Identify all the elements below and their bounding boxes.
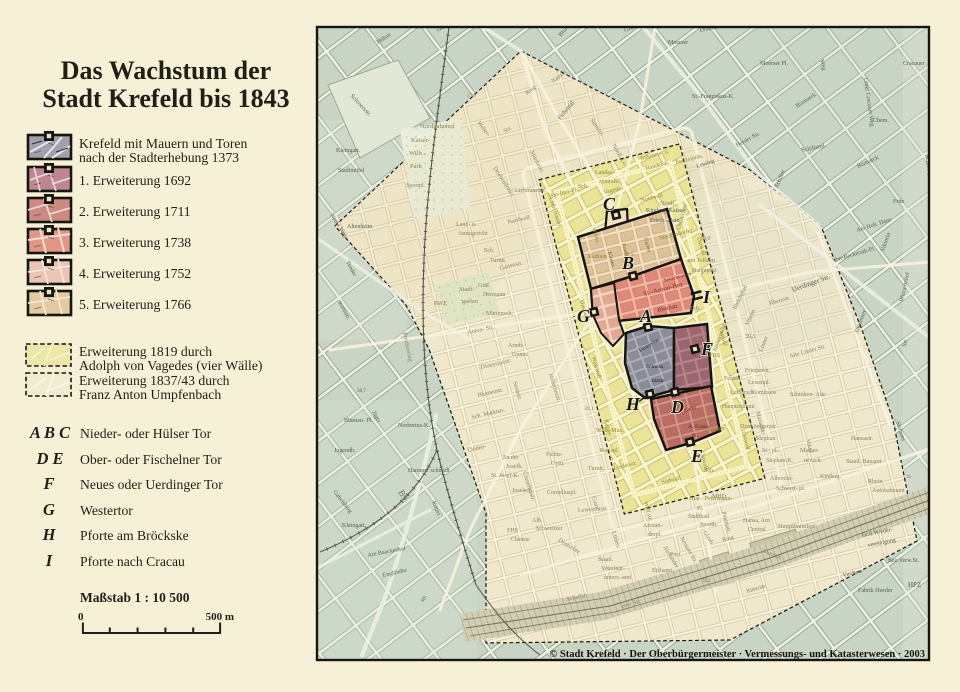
svg-text:A.-Frank-: A.-Frank- (688, 424, 710, 430)
svg-text:D E: D E (35, 449, 63, 468)
svg-text:Land- u.: Land- u. (456, 222, 477, 228)
svg-text:Comenius: Comenius (752, 390, 777, 396)
svg-text:5. Erweiterung 1766: 5. Erweiterung 1766 (79, 297, 191, 312)
svg-text:Karlspl.: Karlspl. (600, 448, 620, 454)
svg-text:Staatl.: Staatl. (598, 557, 614, 563)
svg-text:Stephan-K.: Stephan-K. (766, 458, 794, 464)
svg-text:Corneliuspl.: Corneliuspl. (547, 490, 577, 496)
svg-text:Nordl.: Nordl. (660, 201, 676, 207)
svg-text:Fichte-: Fichte- (546, 452, 563, 458)
svg-text:Erweiterung 1819 durch: Erweiterung 1819 durch (79, 344, 212, 359)
svg-text:Friedensk.: Friedensk. (745, 368, 771, 374)
svg-text:Kinderg.: Kinderg. (820, 474, 842, 480)
svg-text:Pl.: Pl. (697, 506, 704, 512)
svg-text:nach der Stadterhebung 1373: nach der Stadterhebung 1373 (79, 150, 239, 165)
svg-text:Stadtbad: Stadtbad (688, 514, 709, 520)
svg-text:Schwert- pl.: Schwert- pl. (776, 486, 806, 492)
svg-text:markt: markt (652, 378, 665, 384)
svg-text:Albrecht-: Albrecht- (770, 476, 793, 482)
svg-text:B: B (621, 253, 634, 273)
svg-text:Alb.: Alb. (532, 518, 543, 524)
svg-text:3. Erweiterung 1738: 3. Erweiterung 1738 (79, 235, 191, 250)
svg-text:Pforte am Bröckske: Pforte am Bröckske (80, 528, 189, 543)
svg-text:Veterinär-: Veterinär- (601, 566, 625, 572)
svg-text:37,8: 37,8 (467, 94, 476, 99)
svg-text:© Stadt Krefeld · Der Oberbürg: © Stadt Krefeld · Der Oberbürgermeister … (549, 649, 925, 660)
svg-text:Liebfrauenk.: Liebfrauenk. (515, 187, 546, 194)
svg-text:Rathaus: Rathaus (588, 254, 608, 260)
svg-text:Staatl. Bauamt: Staatl. Bauamt (846, 459, 882, 465)
svg-text:Jugendh.: Jugendh. (334, 448, 356, 454)
svg-text:2. Erweiterung 1711: 2. Erweiterung 1711 (79, 204, 191, 219)
svg-text:Sch.: Sch. (578, 184, 589, 190)
svg-text:38,7: 38,7 (357, 389, 366, 394)
svg-text:Luthersch.: Luthersch. (730, 390, 756, 396)
svg-text:Franz Anton Umpfenbach: Franz Anton Umpfenbach (79, 387, 221, 402)
svg-text:Hansa, Am: Hansa, Am (743, 518, 770, 524)
svg-text:Nordbahnhof: Nordbahnhof (420, 123, 455, 130)
svg-text:HPZ: HPZ (908, 581, 921, 589)
svg-text:Hauptbahnhof: Hauptbahnhof (778, 523, 816, 530)
svg-text:Stadtmittel: Stadtmittel (338, 168, 365, 174)
svg-text:St.-Franziskus-K.: St.-Franziskus-K. (692, 94, 735, 100)
svg-text:Gymn.: Gymn. (512, 352, 529, 358)
svg-text:Nieder- oder Hülser Tor: Nieder- oder Hülser Tor (80, 426, 212, 441)
svg-text:I: I (702, 287, 711, 307)
svg-text:Altenheim: Altenheim (347, 224, 373, 230)
svg-text:Krefeld mit Mauern und Toren: Krefeld mit Mauern und Toren (79, 136, 247, 151)
svg-text:39,0: 39,0 (690, 336, 700, 342)
svg-text:am Telkom: am Telkom (688, 258, 715, 264)
svg-text:Sporth.: Sporth. (700, 522, 718, 528)
svg-text:nensch.: nensch. (804, 458, 823, 464)
svg-text:G: G (43, 500, 55, 519)
svg-text:Sch.: Sch. (484, 248, 495, 254)
svg-text:Leisenpl.: Leisenpl. (748, 380, 771, 386)
svg-text:A: A (639, 306, 652, 326)
svg-text:garten: garten (462, 298, 479, 305)
svg-text:Kleingart.: Kleingart. (342, 523, 367, 529)
svg-text:500 m: 500 m (206, 611, 234, 623)
svg-text:F: F (42, 474, 54, 493)
svg-text:Joselsch.: Joselsch. (512, 488, 534, 494)
svg-text:0: 0 (78, 611, 84, 623)
svg-text:D: D (670, 397, 684, 417)
svg-text:Hammer schmidt: Hammer schmidt (408, 468, 450, 474)
svg-text:Maßstab 1 : 10 500: Maßstab 1 : 10 500 (80, 590, 190, 605)
svg-text:Tch.: Tch. (690, 306, 701, 312)
svg-text:Hansastr.: Hansastr. (851, 436, 874, 442)
svg-text:Schweitzer: Schweitzer (536, 526, 563, 532)
svg-text:An der: An der (502, 455, 519, 461)
svg-text:Sportpl.: Sportpl. (406, 183, 426, 189)
svg-text:F: F (700, 339, 713, 359)
svg-text:Das Wachstum der: Das Wachstum der (61, 56, 271, 85)
svg-text:Arndt-: Arndt- (508, 343, 524, 349)
svg-text:Fabrik Heeder: Fabrik Heeder (858, 588, 893, 594)
svg-text:36: 36 (906, 475, 912, 480)
svg-text:Landes-: Landes- (595, 170, 614, 176)
svg-text:Hauptpost: Hauptpost (692, 268, 717, 274)
svg-text:Gym.: Gym. (551, 461, 565, 467)
svg-text:Amtsgericht: Amtsgericht (458, 231, 488, 237)
svg-text:unters.-amt: unters.-amt (604, 575, 631, 581)
svg-text:Gräf.: Gräf. (478, 282, 491, 289)
svg-text:39,1: 39,1 (584, 406, 594, 412)
svg-text:E: E (690, 446, 703, 466)
svg-text:Turnh.: Turnh. (588, 466, 604, 472)
svg-text:Josefk.: Josefk. (506, 463, 523, 470)
svg-text:zentralb.: zentralb. (599, 179, 620, 185)
svg-text:Bez.Verw.St.: Bez.Verw.St. (888, 558, 920, 564)
svg-text:H: H (625, 394, 641, 414)
svg-text:Chem.: Chem. (873, 118, 889, 124)
svg-text:Kleingart.: Kleingart. (336, 148, 361, 154)
svg-text:Schinken- Alte: Schinken- Alte (790, 392, 826, 398)
svg-text:Hauptzollamt: Hauptzollamt (722, 404, 755, 410)
svg-text:Adolph von Vagedes (vier Wälle: Adolph von Vagedes (vier Wälle) (79, 358, 262, 374)
svg-text:Moerser: Moerser (668, 40, 688, 46)
svg-text:St. Josef-K.: St. Josef-K. (491, 472, 520, 479)
svg-text:Eichamt: Eichamt (652, 568, 672, 574)
svg-text:Mariensch.: Mariensch. (486, 311, 513, 317)
svg-text:Schwan.: Schwan. (646, 364, 665, 370)
svg-text:Turnh.: Turnh. (490, 258, 506, 264)
svg-text:Erweiterung 1837/43 durch: Erweiterung 1837/43 durch (79, 373, 230, 388)
svg-text:Norbertus-K.: Norbertus-K. (398, 423, 430, 429)
svg-text:RWE: RWE (434, 301, 447, 307)
svg-text:St.- pl.: St.- pl. (762, 448, 779, 454)
svg-text:Stadt-: Stadt- (459, 286, 475, 293)
svg-text:G: G (577, 306, 590, 326)
svg-text:Blumen- Pl.: Blumen- Pl. (344, 418, 374, 424)
svg-text:Cracauer: Cracauer (903, 61, 925, 67)
svg-text:Pforte nach Cracau: Pforte nach Cracau (80, 554, 185, 569)
svg-text:Kaiser-: Kaiser- (411, 137, 430, 144)
svg-text:I: I (45, 551, 53, 570)
svg-text:A B C: A B C (29, 423, 71, 442)
svg-text:Sch.: Sch. (704, 468, 715, 474)
svg-text:Fritz: Fritz (893, 199, 905, 205)
svg-text:A.d.alt.: A.d.alt. (696, 416, 714, 422)
svg-text:Marian-: Marian- (800, 448, 819, 454)
svg-text:Rhein.: Rhein. (868, 479, 884, 485)
svg-text:1. Erweiterung 1692: 1. Erweiterung 1692 (79, 173, 191, 188)
svg-text:4. Erweiterung 1752: 4. Erweiterung 1752 (79, 266, 191, 281)
svg-text:FHS: FHS (507, 528, 518, 534)
svg-text:Ober- oder Fischelner Tor: Ober- oder Fischelner Tor (80, 452, 222, 467)
svg-text:Stephan: Stephan (756, 436, 775, 442)
svg-text:Park: Park (410, 163, 423, 170)
svg-text:Dreikönigenstr.: Dreikönigenstr. (740, 424, 778, 430)
svg-text:Stadt Krefeld bis 1843: Stadt Krefeld bis 1843 (42, 84, 289, 113)
svg-text:Westertor: Westertor (80, 503, 133, 518)
svg-text:Feldstr.: Feldstr. (724, 376, 742, 382)
svg-text:Mar.- Petermann-: Mar.- Petermann- (690, 496, 732, 502)
svg-text:Neues oder Uerdinger Tor: Neues oder Uerdinger Tor (80, 477, 223, 492)
svg-text:Hermann: Hermann (483, 292, 505, 298)
svg-text:Wilh.-Mus.: Wilh.-Mus. (596, 428, 624, 434)
svg-text:Autobahnamt: Autobahnamt (872, 488, 905, 494)
svg-text:Post: Post (670, 552, 681, 558)
svg-text:C: C (603, 194, 616, 214)
svg-text:39,5: 39,5 (745, 334, 756, 340)
svg-text:derpl.: derpl. (648, 532, 662, 538)
svg-text:Alexan-: Alexan- (643, 523, 662, 529)
svg-text:Central: Central (748, 527, 766, 533)
svg-text:Friedr.-Hain: Friedr.-Hain (650, 218, 680, 224)
svg-text:H: H (42, 525, 57, 544)
svg-text:38,2: 38,2 (702, 579, 711, 584)
svg-text:Moerser Pl.: Moerser Pl. (760, 61, 788, 67)
svg-text:Chemie: Chemie (511, 537, 530, 543)
svg-text:Wilh.-: Wilh.- (409, 150, 426, 157)
